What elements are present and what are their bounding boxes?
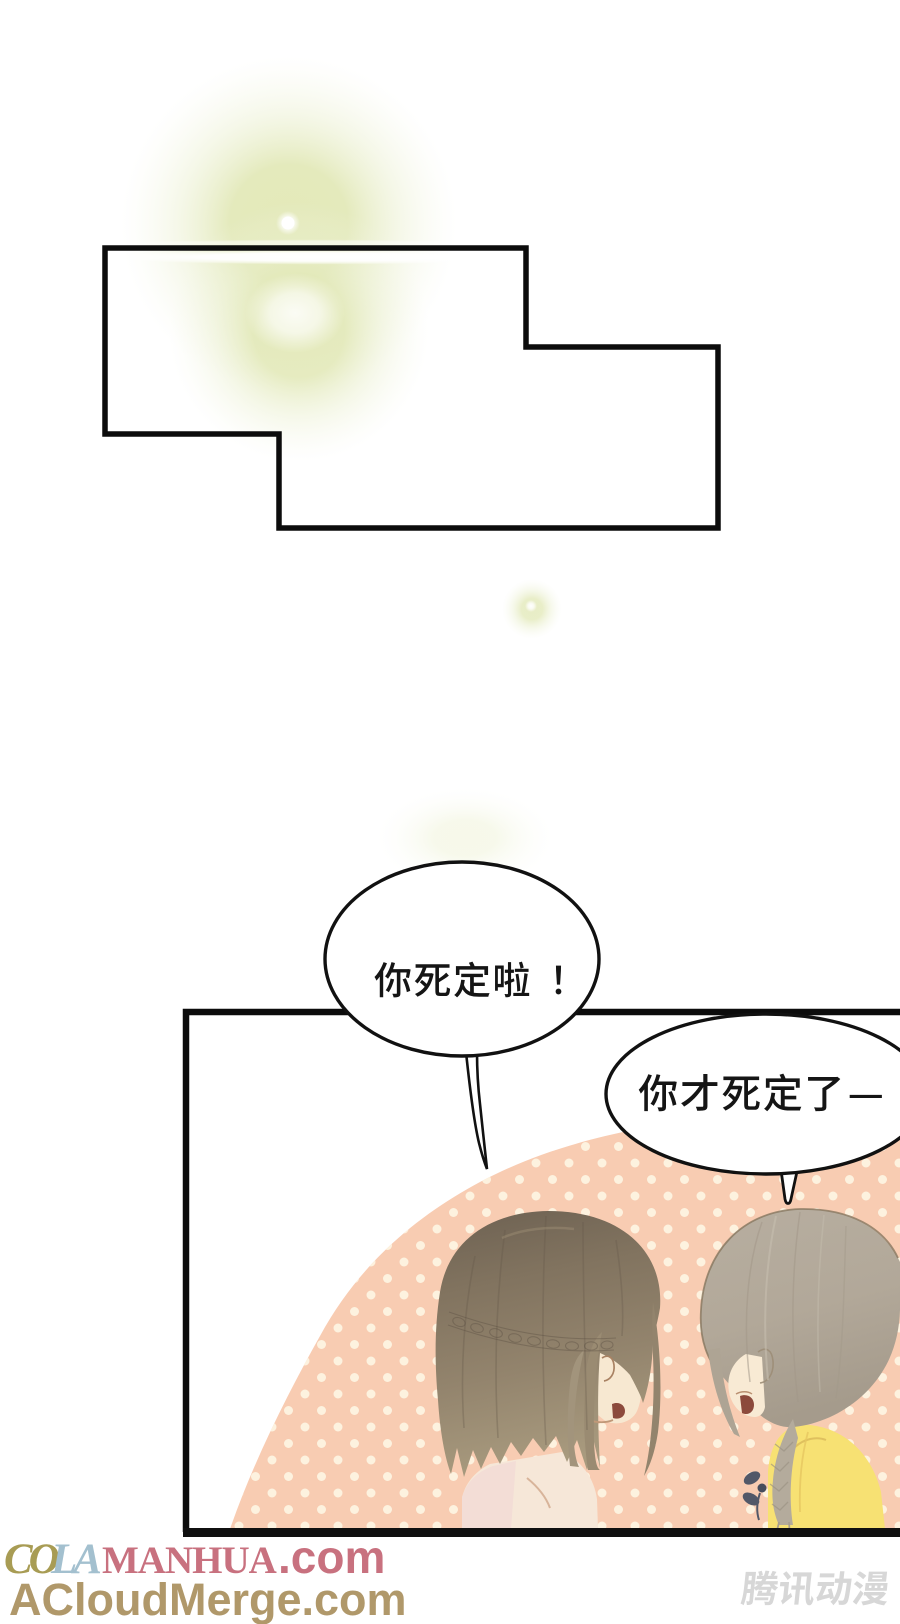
svg-text:ACloudMerge.com: ACloudMerge.com (9, 1574, 407, 1624)
